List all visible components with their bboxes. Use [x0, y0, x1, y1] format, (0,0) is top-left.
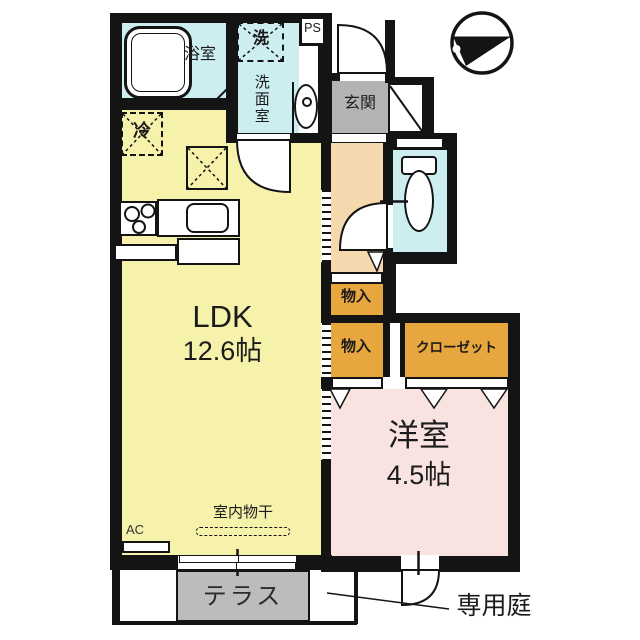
wall: [385, 20, 395, 80]
wall: [321, 133, 331, 190]
wall: [321, 460, 331, 570]
wall: [396, 313, 518, 323]
north-arrow-icon: [452, 13, 512, 73]
room-hallway: [329, 143, 383, 273]
entrance-label: 玄関: [332, 96, 388, 113]
sliding-partition: [322, 389, 331, 460]
western-room-label: 洋室: [358, 420, 480, 453]
kitchen-counter-return: [114, 244, 177, 261]
ldk-label: LDK: [150, 301, 295, 334]
storage-1-label: 物入: [329, 289, 383, 305]
closet-door-front: [331, 377, 383, 389]
western-room-size-label: 4.5帖: [358, 461, 480, 489]
sliding-partition: [322, 190, 331, 262]
garden-leader-line: [327, 593, 449, 609]
wall: [383, 143, 393, 205]
entrance-doorway: [340, 73, 385, 81]
garden-boundary: [354, 568, 358, 624]
fridge-label: 冷: [121, 122, 163, 141]
wall: [508, 313, 520, 572]
wall: [383, 323, 390, 377]
closet-door-front: [405, 377, 509, 389]
wall: [321, 377, 331, 389]
bathroom-label: 浴室: [170, 47, 230, 64]
ldk-size-label: 12.6帖: [150, 337, 295, 365]
indoor-drying-label: 室内物干: [190, 505, 296, 521]
storage-2-label: 物入: [329, 339, 383, 355]
wall: [110, 98, 238, 110]
doorway: [237, 134, 290, 142]
garden-boundary: [112, 570, 120, 622]
garden-door-swing: [402, 570, 439, 605]
wall: [447, 133, 457, 264]
private-garden-label: 専用庭: [446, 593, 542, 619]
wall: [110, 13, 122, 570]
entrance-door-swing: [338, 25, 387, 73]
wall: [383, 264, 396, 323]
terrace-label: テラス: [186, 584, 300, 609]
garden-door-threshold: [401, 555, 439, 571]
toilet-icon: [404, 170, 434, 232]
stove-icon: [119, 201, 157, 236]
washroom-label: 洗面室: [253, 63, 269, 135]
wall: [383, 252, 457, 264]
storage-sliding-door: [330, 272, 383, 284]
sink-icon: [186, 203, 229, 233]
entrance-step: [332, 133, 386, 143]
toilet-window: [396, 138, 443, 148]
terrace-window-pane: [179, 555, 239, 563]
ac-unit: [122, 541, 170, 553]
wall-gap: [390, 323, 400, 377]
shoe-cabinet: [388, 83, 424, 133]
washer-label: 洗: [243, 31, 279, 48]
closet-label: クローゼット: [405, 341, 508, 355]
kitchen-counter-return: [177, 238, 240, 265]
indoor-drying-bar: [196, 527, 290, 536]
floor-plan: 浴室 洗 洗面室 PS 玄関 冷 LDK 12.6帖 物入 物入 クローゼット …: [0, 0, 640, 640]
wall: [321, 315, 383, 323]
ac-label: AC: [126, 523, 166, 537]
wall: [424, 77, 434, 140]
washbasin-icon: [294, 84, 318, 129]
terrace-window-pane: [236, 562, 296, 570]
ps-label: PS: [299, 22, 326, 35]
kitchen-hatch-box: [186, 146, 228, 190]
